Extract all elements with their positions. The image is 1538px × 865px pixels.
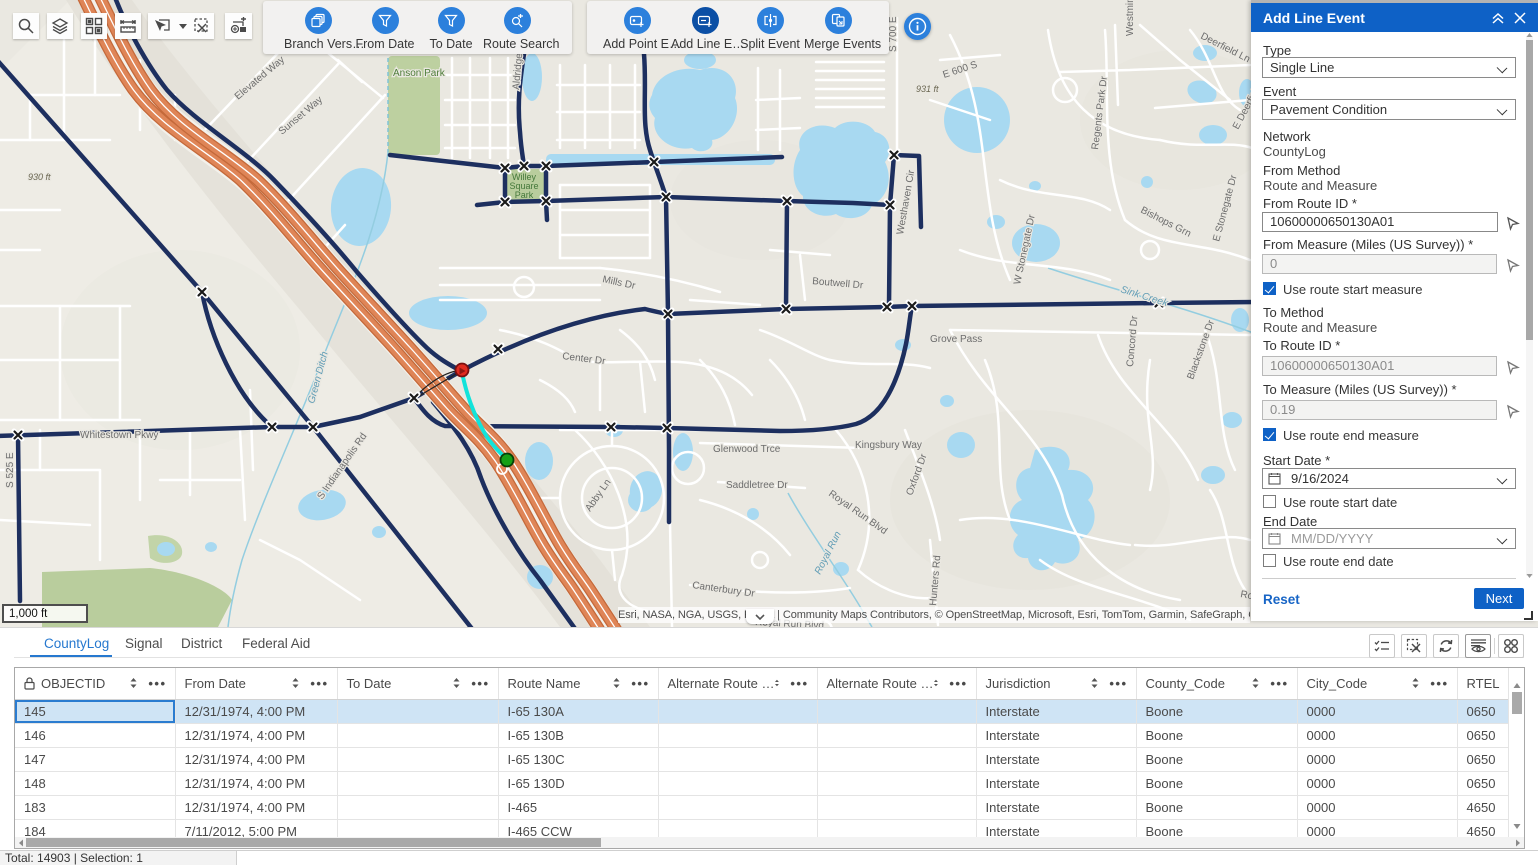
svg-text:Concord Dr: Concord Dr <box>1125 315 1140 368</box>
svg-text:Boutwell Dr: Boutwell Dr <box>812 276 865 291</box>
svg-text:Sunset Way: Sunset Way <box>277 94 325 137</box>
svg-text:S 700 E: S 700 E <box>888 16 899 52</box>
svg-text:Glenwood Trce: Glenwood Trce <box>713 444 781 455</box>
svg-text:Saddletree Dr: Saddletree Dr <box>726 480 788 491</box>
svg-text:Center Dr: Center Dr <box>562 351 607 367</box>
svg-text:Westhaven Cir: Westhaven Cir <box>895 169 917 236</box>
svg-text:Canterbury Dr: Canterbury Dr <box>692 580 756 600</box>
svg-text:Westmin: Westmin <box>1125 0 1136 36</box>
svg-text:Royal Run Blvd: Royal Run Blvd <box>826 488 889 537</box>
svg-text:931 ft: 931 ft <box>916 84 939 94</box>
svg-text:Anson Park: Anson Park <box>393 68 446 79</box>
svg-text:E 600 S: E 600 S <box>942 59 980 81</box>
svg-text:Elevated Way: Elevated Way <box>233 54 287 102</box>
svg-text:930 ft: 930 ft <box>28 172 51 182</box>
svg-text:Mills Dr: Mills Dr <box>601 274 637 292</box>
svg-text:S 525 E: S 525 E <box>5 452 16 488</box>
svg-text:Grove Pass: Grove Pass <box>930 334 982 345</box>
svg-text:Whitestown Pkwy: Whitestown Pkwy <box>80 430 158 441</box>
svg-text:Park: Park <box>515 190 534 200</box>
svg-text:Sink Creek: Sink Creek <box>1119 284 1170 309</box>
svg-text:Abby Ln: Abby Ln <box>583 477 613 513</box>
svg-text:Kingsbury Way: Kingsbury Way <box>855 440 922 451</box>
